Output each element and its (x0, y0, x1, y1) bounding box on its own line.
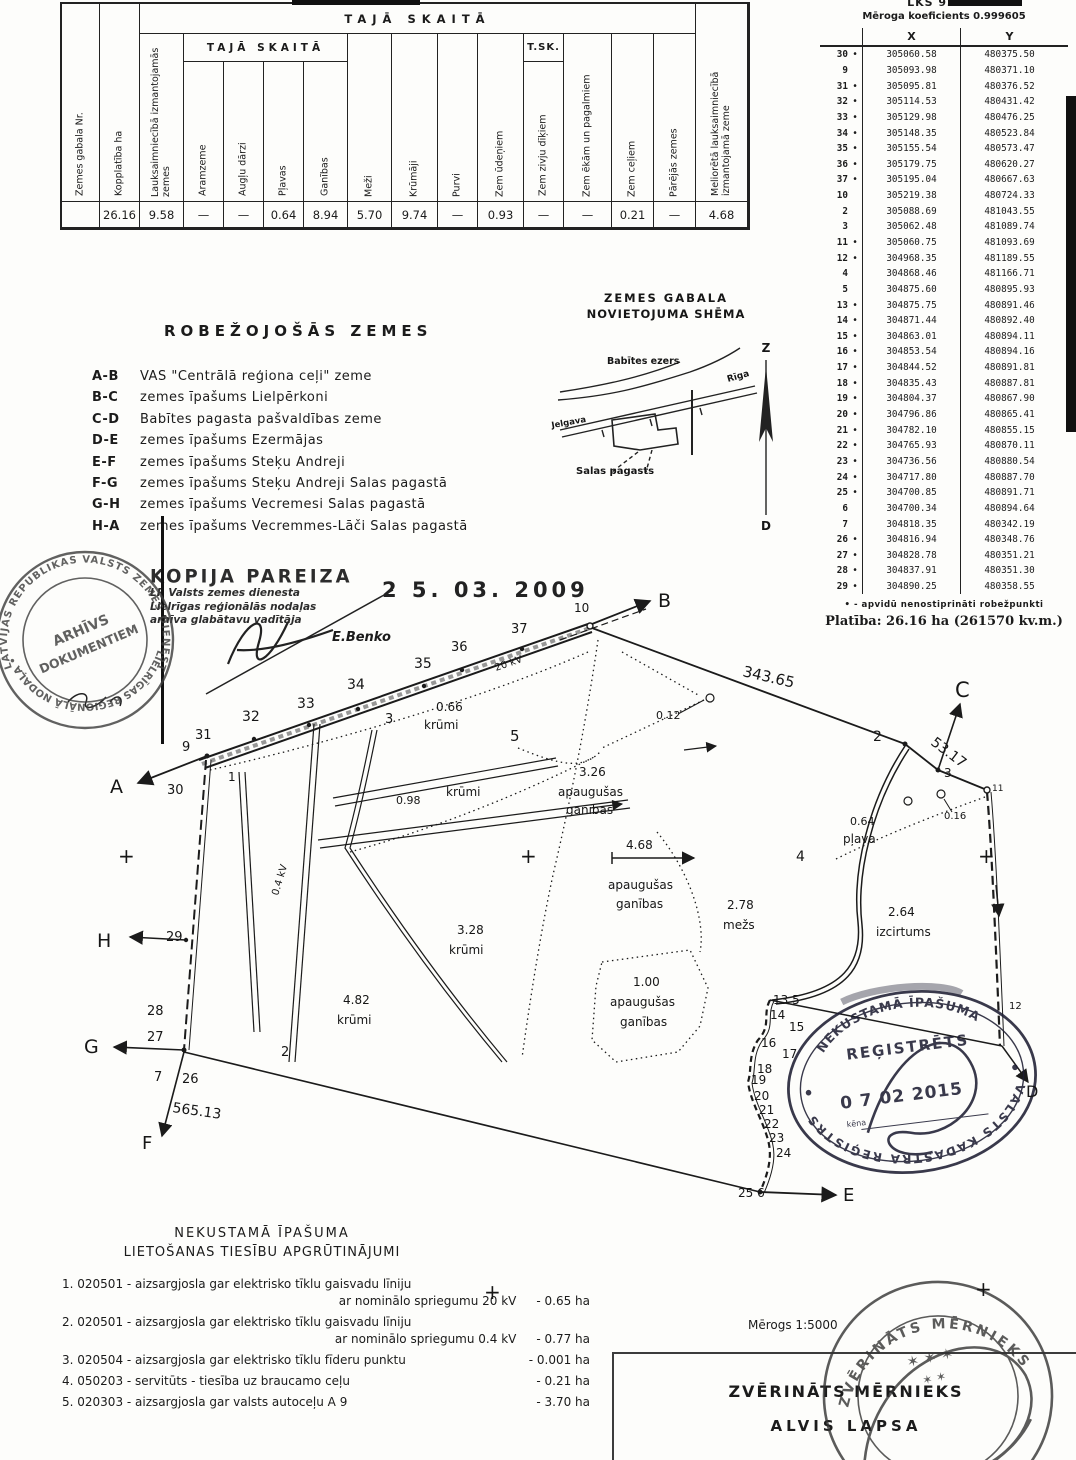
map-label: 35 (414, 656, 432, 672)
map-label: 2.64 (888, 905, 915, 919)
map-label: B (658, 590, 671, 612)
map-label: + (118, 844, 135, 868)
map-label: E (843, 1185, 854, 1206)
map-label: apaugušas (558, 785, 623, 799)
map-label: 32 (242, 709, 260, 725)
map-label: ganības (620, 1015, 667, 1029)
map-label: 0.16 (944, 811, 966, 822)
registry-stamp-field-label: kēna (846, 1118, 867, 1129)
map-label: krūmi (424, 718, 459, 732)
map-label: 3.26 (579, 765, 606, 779)
map-label: izcirtums (876, 925, 931, 939)
registry-stamp: NEKUSTAMĀ ĪPAŠUMA REĢISTRĒTS 0 7 02 2015… (777, 972, 1046, 1186)
map-label: D (1026, 1082, 1038, 1101)
registry-stamp-date: 0 7 02 2015 (839, 1079, 964, 1114)
map-label: 0.12 (656, 709, 681, 722)
map-label: 0.66 (436, 700, 463, 714)
map-labels-layer: ABCDEFGH30931132333435363710352311124213… (84, 590, 1038, 1304)
sketch-lake-label: Babītes ezers (607, 356, 680, 367)
surveyor-stamp-stars-row2: ✶ ✶ (921, 1369, 947, 1388)
map-label: F (142, 1133, 152, 1154)
archive-stamp: LATVIJAS REPUBLIKAS VALSTS ZEMES DIENEST… (0, 0, 173, 728)
map-label: 0.4 kV (270, 863, 290, 897)
map-label: ganības (566, 803, 613, 817)
map-label: ganības (616, 897, 663, 911)
map-label: 4.68 (626, 838, 653, 852)
map-label: 4.82 (343, 993, 370, 1007)
map-label: 29 (166, 930, 183, 945)
scan-artifacts (161, 0, 1076, 744)
map-label: 7 (154, 1070, 162, 1085)
map-label: 24 (776, 1146, 791, 1160)
map-label: 17 (782, 1047, 797, 1061)
map-label: A (110, 776, 123, 798)
surveyor-stamp: ZVĒRINĀTS MĒRNIEKS ✶ ✶ ✶ ✶ ✶ (803, 1261, 1073, 1460)
cadastral-map-drawing: ZEMES GABALA NOVIETOJUMA SHĒMA Babītes e… (0, 0, 1076, 1460)
map-label: 2.78 (727, 898, 754, 912)
map-label: 14 (770, 1008, 785, 1022)
map-label: 1.00 (633, 975, 660, 989)
map-label: + (975, 1277, 992, 1301)
map-label: 0.64 (850, 815, 875, 828)
map-label: 37 (511, 622, 528, 637)
map-label: 27 (147, 1030, 164, 1045)
south-arrow-label: D (761, 519, 771, 533)
map-label: + (484, 1280, 501, 1304)
map-label: 20 (754, 1089, 769, 1103)
map-label: apaugušas (608, 878, 673, 892)
sketch-title-line1: ZEMES GABALA (604, 291, 728, 305)
map-label: krūmi (337, 1013, 372, 1027)
map-label: 31 (195, 728, 212, 743)
map-label: 11 (992, 784, 1003, 794)
map-label: 36 (451, 640, 468, 655)
map-label: 26 (182, 1072, 199, 1087)
archive-stamp-ring-text: LATVIJAS REPUBLIKAS VALSTS ZEMES DIENEST… (0, 0, 171, 673)
map-label: 13 5 (773, 993, 800, 1007)
map-label: 565.13 (171, 1100, 222, 1123)
sketch-title-line2: NOVIETOJUMA SHĒMA (587, 307, 746, 321)
map-label: krūmi (446, 785, 481, 799)
map-label: apaugušas (610, 995, 675, 1009)
scanned-land-survey-document: Zemes gabala Nr. Kopplatība ha TAJĀ SKAI… (0, 0, 1076, 1460)
map-label: 23 (769, 1131, 784, 1145)
map-label: H (97, 930, 111, 952)
map-label: 1 (228, 770, 236, 784)
map-label: mežs (723, 918, 755, 932)
map-label: 5 (510, 727, 520, 745)
map-label: C (955, 678, 970, 702)
map-label: 12 (1009, 1001, 1022, 1012)
map-label: pļava (843, 832, 876, 846)
sketch-parish-label: Salas pagasts (576, 466, 654, 477)
svg-text:LATVIJAS REPUBLIKAS VALSTS ZEM: LATVIJAS REPUBLIKAS VALSTS ZEMES DIENEST… (0, 0, 171, 673)
map-label: 28 (147, 1004, 164, 1019)
map-label: 30 (167, 783, 184, 798)
map-label: 22 (764, 1117, 779, 1131)
signature-strokes (68, 590, 393, 707)
map-label: 4 (796, 849, 805, 865)
map-label: + (520, 844, 537, 868)
map-label: 21 (759, 1103, 774, 1117)
map-label: 25 6 (738, 1186, 765, 1200)
map-label: 2 (873, 729, 882, 745)
map-label: 19 (751, 1073, 766, 1087)
map-label: 9 (182, 740, 190, 755)
map-label: 15 (789, 1020, 804, 1034)
map-label: 33 (297, 696, 315, 712)
map-label: krūmi (449, 943, 484, 957)
map-label: G (84, 1036, 99, 1058)
surveyor-stamp-stars: ✶ ✶ ✶ (905, 1344, 955, 1371)
map-label: 2 (281, 1045, 289, 1060)
map-label: 0.98 (396, 794, 421, 807)
map-label: 343.65 (741, 662, 796, 691)
map-label: 3.28 (457, 923, 484, 937)
map-label: 3 (385, 712, 393, 727)
location-sketch: ZEMES GABALA NOVIETOJUMA SHĒMA Babītes e… (550, 291, 773, 533)
map-label: 34 (347, 677, 365, 693)
sketch-road-right-label: Rīga (726, 369, 750, 385)
map-label: + (978, 844, 995, 868)
map-label: 3 (944, 766, 952, 780)
map-label: 10 (574, 601, 589, 615)
map-label: 16 (761, 1036, 776, 1050)
north-arrow-label: Z (762, 341, 771, 355)
